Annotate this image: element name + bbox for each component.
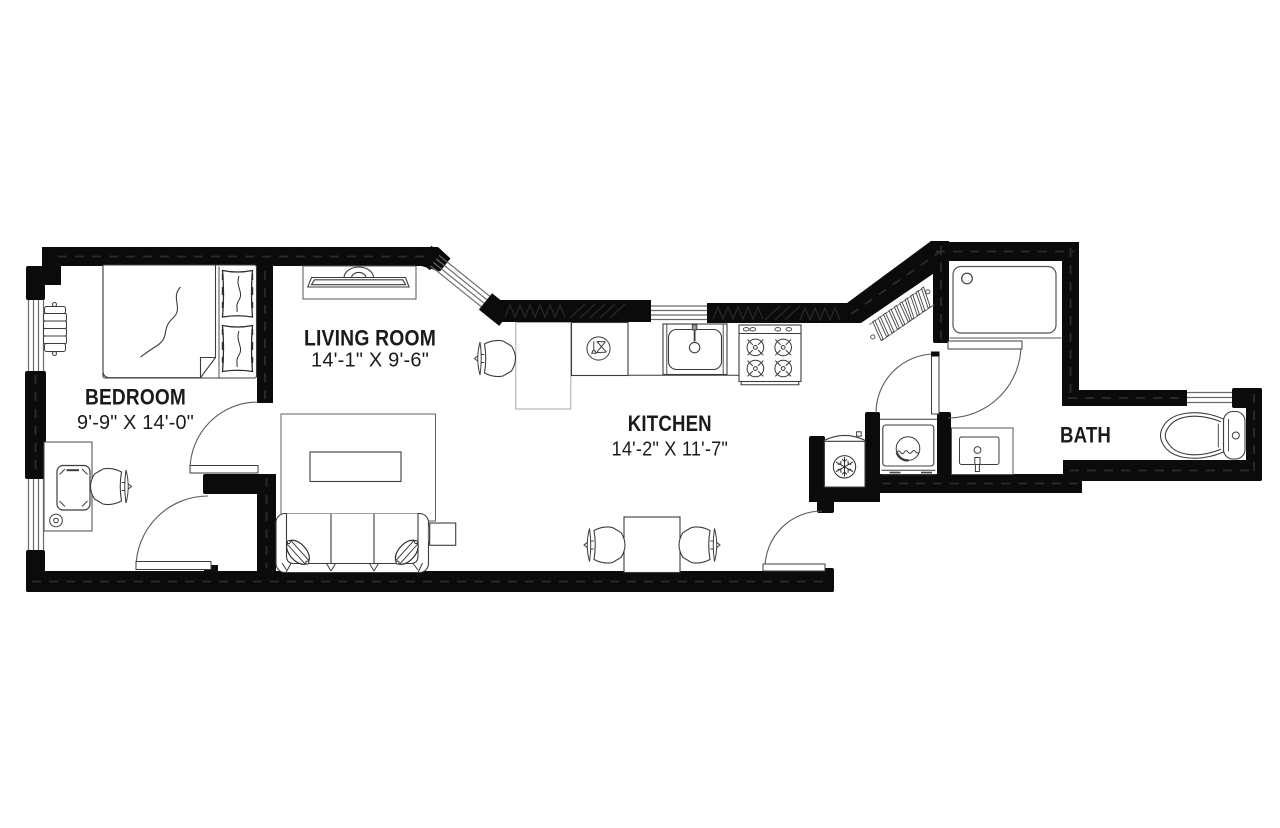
svg-text:9'-9" X 14'-0": 9'-9" X 14'-0": [77, 412, 194, 434]
svg-text:LIVING ROOM: LIVING ROOM: [304, 325, 436, 350]
svg-text:BATH: BATH: [1060, 423, 1111, 448]
svg-text:KITCHEN: KITCHEN: [628, 411, 712, 436]
svg-text:14'-2" X 11'-7": 14'-2" X 11'-7": [612, 438, 729, 460]
svg-text:BEDROOM: BEDROOM: [85, 385, 186, 410]
svg-text:14'-1" X 9'-6": 14'-1" X 9'-6": [311, 350, 429, 372]
